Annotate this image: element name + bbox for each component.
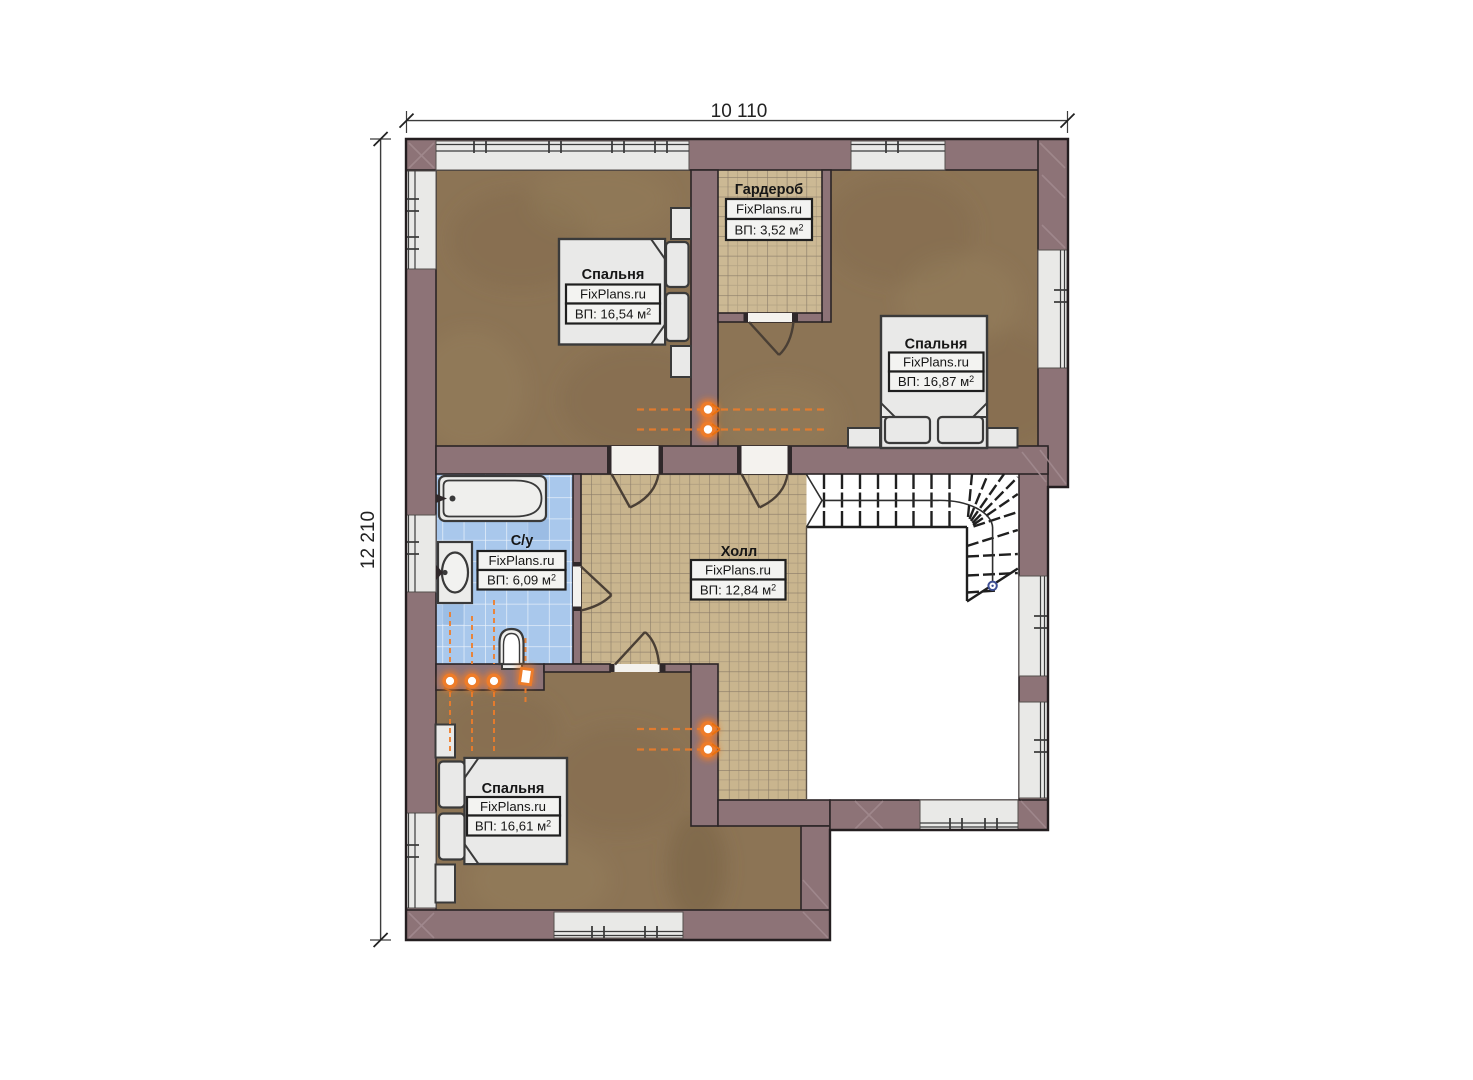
svg-text:10 110: 10 110 (711, 101, 768, 122)
svg-text:Гардероб: Гардероб (735, 182, 804, 198)
svg-text:С/у: С/у (511, 533, 534, 549)
svg-text:Спальня: Спальня (905, 337, 968, 353)
svg-text:ВП: 16,61 м2: ВП: 16,61 м2 (475, 819, 551, 834)
svg-text:12 210: 12 210 (358, 511, 379, 569)
svg-text:FixPlans.ru: FixPlans.ru (903, 355, 969, 370)
svg-text:ВП: 12,84 м2: ВП: 12,84 м2 (700, 583, 776, 598)
svg-text:Спальня: Спальня (582, 267, 645, 283)
svg-text:FixPlans.ru: FixPlans.ru (489, 553, 555, 568)
svg-text:FixPlans.ru: FixPlans.ru (736, 202, 802, 217)
svg-text:FixPlans.ru: FixPlans.ru (580, 287, 646, 302)
svg-text:ВП: 6,09 м2: ВП: 6,09 м2 (487, 573, 556, 588)
svg-text:ВП: 3,52 м2: ВП: 3,52 м2 (734, 223, 803, 238)
svg-text:Холл: Холл (721, 544, 757, 560)
svg-text:Спальня: Спальня (482, 781, 545, 797)
svg-text:ВП: 16,87 м2: ВП: 16,87 м2 (898, 374, 974, 389)
svg-text:ВП: 16,54 м2: ВП: 16,54 м2 (575, 307, 651, 322)
svg-text:FixPlans.ru: FixPlans.ru (705, 563, 771, 578)
svg-text:FixPlans.ru: FixPlans.ru (480, 799, 546, 814)
